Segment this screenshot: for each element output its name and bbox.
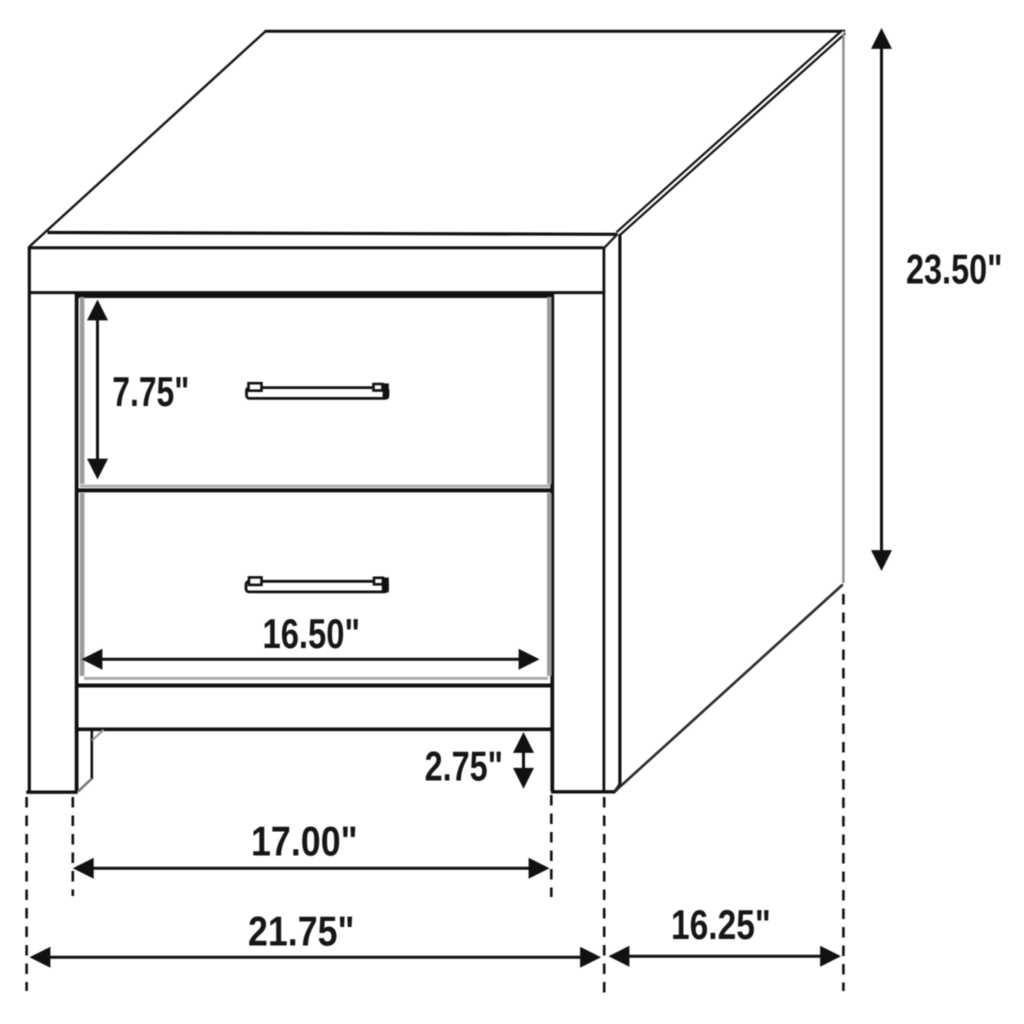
svg-text:23.50": 23.50": [906, 246, 1003, 293]
svg-text:2.75": 2.75": [425, 743, 503, 790]
svg-text:17.00": 17.00": [251, 817, 358, 864]
svg-text:21.75": 21.75": [248, 908, 354, 955]
svg-text:7.75": 7.75": [112, 368, 189, 415]
svg-text:16.25": 16.25": [671, 901, 771, 948]
svg-text:16.50": 16.50": [263, 610, 361, 657]
